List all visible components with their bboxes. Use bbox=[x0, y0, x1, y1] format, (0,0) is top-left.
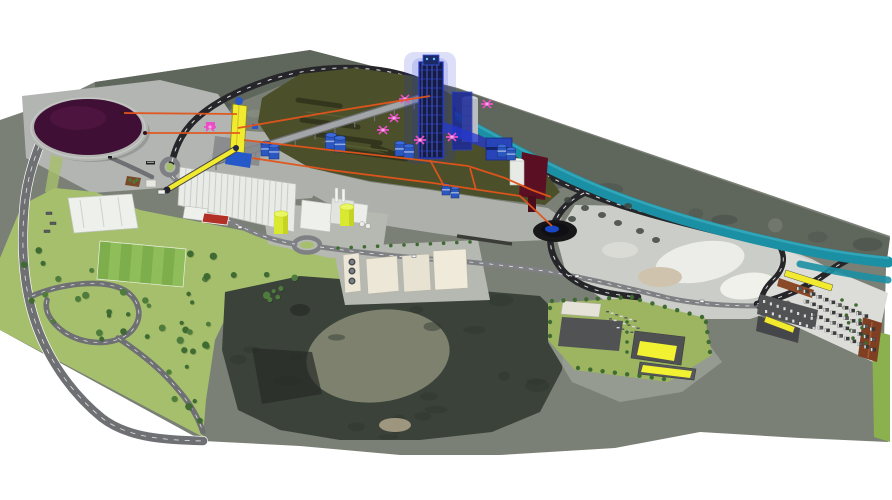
small-tank bbox=[360, 222, 365, 227]
forest-pond bbox=[290, 304, 310, 316]
sand-patch bbox=[379, 418, 411, 432]
planter-shrub bbox=[128, 178, 131, 181]
thickener-pond bbox=[533, 220, 577, 242]
small-tank bbox=[366, 224, 371, 229]
conveyor-head bbox=[233, 145, 239, 151]
mill-building-a bbox=[300, 200, 332, 232]
tower-cap bbox=[423, 55, 439, 65]
cream-warehouse-3 bbox=[433, 249, 468, 290]
dome-sheen bbox=[50, 106, 106, 130]
dome-door bbox=[108, 156, 112, 159]
station-tanks bbox=[349, 259, 356, 285]
loading-truck bbox=[158, 190, 165, 194]
quarry-light-patch bbox=[602, 242, 638, 258]
complex-parking bbox=[558, 317, 623, 351]
shuttle-bus bbox=[146, 161, 155, 165]
roundabout-main-island bbox=[166, 163, 174, 171]
tower-light bbox=[426, 58, 428, 60]
planter-shrub bbox=[135, 178, 138, 181]
cream-warehouse-2 bbox=[402, 254, 431, 292]
office-building bbox=[68, 194, 138, 233]
site-plan-render bbox=[0, 0, 892, 500]
turnaround-island bbox=[300, 242, 314, 249]
quarry-beige-patch bbox=[638, 267, 682, 287]
coal-pile bbox=[252, 348, 322, 404]
mill-building-c bbox=[352, 203, 368, 224]
planter-shrub bbox=[132, 180, 135, 183]
tower-light bbox=[433, 58, 435, 60]
elevator-head bbox=[235, 97, 243, 105]
pond-water bbox=[545, 226, 559, 233]
mill-stack bbox=[335, 188, 338, 202]
complex-office bbox=[561, 301, 601, 317]
mill-stack bbox=[342, 189, 345, 202]
cream-warehouse-1 bbox=[366, 256, 399, 294]
gate-building bbox=[146, 180, 156, 187]
